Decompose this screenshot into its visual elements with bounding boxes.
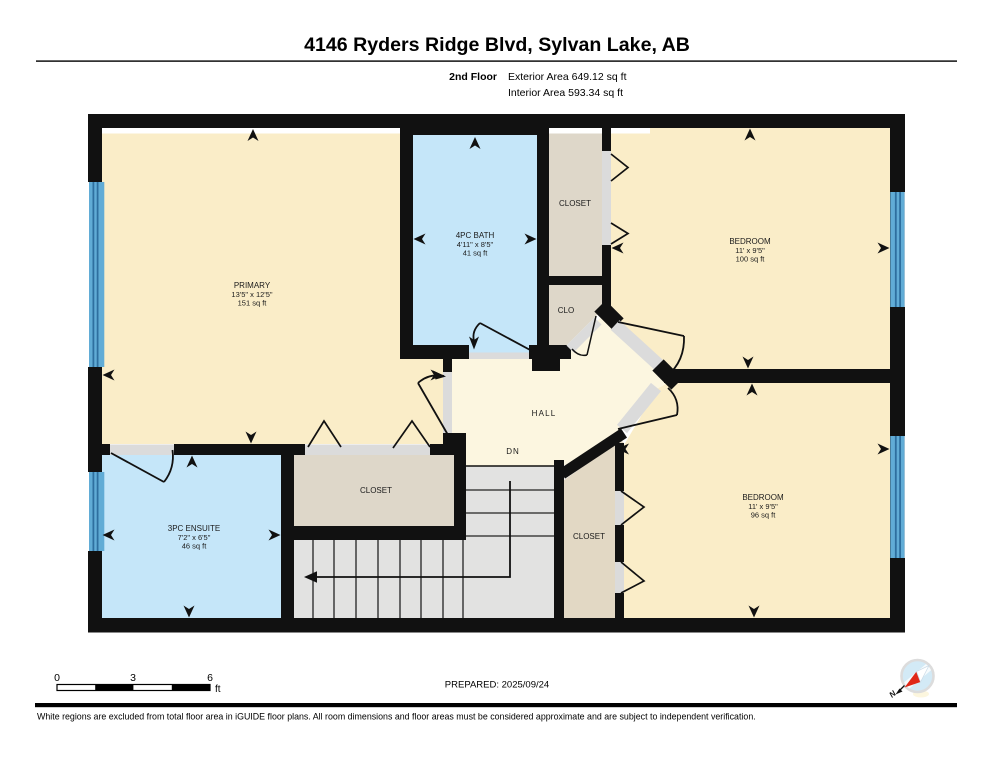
svg-text:4146 Ryders Ridge Blvd, Sylvan: 4146 Ryders Ridge Blvd, Sylvan Lake, AB [304, 34, 690, 56]
svg-text:100 sq ft: 100 sq ft [736, 255, 766, 264]
svg-text:2nd Floor: 2nd Floor [449, 71, 497, 83]
svg-text:46 sq ft: 46 sq ft [182, 542, 208, 551]
svg-text:DN: DN [506, 447, 520, 456]
svg-text:Interior Area 593.34 sq ft: Interior Area 593.34 sq ft [508, 87, 623, 99]
svg-text:HALL: HALL [532, 409, 557, 418]
svg-text:4PC BATH: 4PC BATH [456, 231, 495, 240]
svg-text:BEDROOM: BEDROOM [742, 493, 784, 502]
svg-text:Exterior Area 649.12 sq ft: Exterior Area 649.12 sq ft [508, 71, 627, 83]
svg-text:PREPARED: 2025/09/24: PREPARED: 2025/09/24 [445, 680, 549, 691]
svg-text:CLOSET: CLOSET [573, 532, 605, 541]
svg-text:White regions are excluded fro: White regions are excluded from total fl… [37, 712, 756, 722]
svg-text:41 sq ft: 41 sq ft [463, 249, 489, 258]
svg-text:0: 0 [54, 672, 60, 684]
svg-text:CLOSET: CLOSET [559, 199, 591, 208]
svg-text:CLO: CLO [558, 306, 574, 315]
svg-text:3PC ENSUITE: 3PC ENSUITE [168, 524, 220, 533]
svg-text:96 sq ft: 96 sq ft [751, 511, 777, 520]
svg-text:ft: ft [215, 684, 221, 695]
svg-text:CLOSET: CLOSET [360, 486, 392, 495]
svg-text:3: 3 [130, 672, 136, 684]
svg-text:PRIMARY: PRIMARY [234, 281, 271, 290]
svg-text:BEDROOM: BEDROOM [729, 237, 771, 246]
svg-text:6: 6 [207, 672, 213, 684]
svg-text:151 sq ft: 151 sq ft [238, 299, 268, 308]
